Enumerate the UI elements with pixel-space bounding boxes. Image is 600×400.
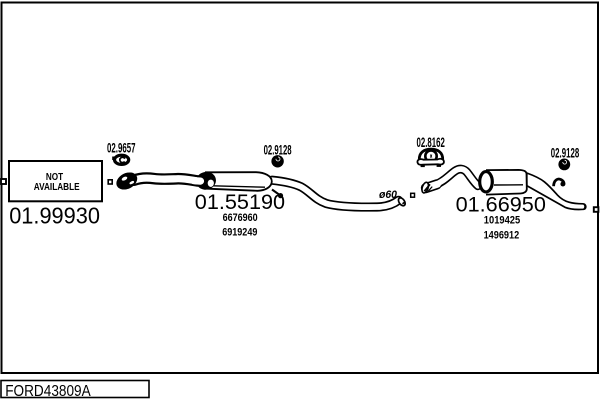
svg-text:1019425: 1019425 <box>484 215 520 227</box>
svg-text:01.55190: 01.55190 <box>195 190 285 214</box>
svg-text:02.8162: 02.8162 <box>417 135 445 150</box>
svg-text:6919249: 6919249 <box>222 226 257 238</box>
svg-text:01.66950: 01.66950 <box>456 193 546 217</box>
svg-text:6676960: 6676960 <box>223 212 258 224</box>
svg-text:AVAILABLE: AVAILABLE <box>34 182 80 193</box>
svg-text:02.9657: 02.9657 <box>107 139 136 155</box>
svg-text:02.9128: 02.9128 <box>264 141 292 157</box>
svg-text:01.99930: 01.99930 <box>9 202 100 228</box>
svg-text:FORD43809A: FORD43809A <box>5 383 91 400</box>
svg-text:ø60: ø60 <box>379 189 398 201</box>
svg-text:1496912: 1496912 <box>484 229 520 241</box>
svg-text:02.9128: 02.9128 <box>551 145 580 161</box>
